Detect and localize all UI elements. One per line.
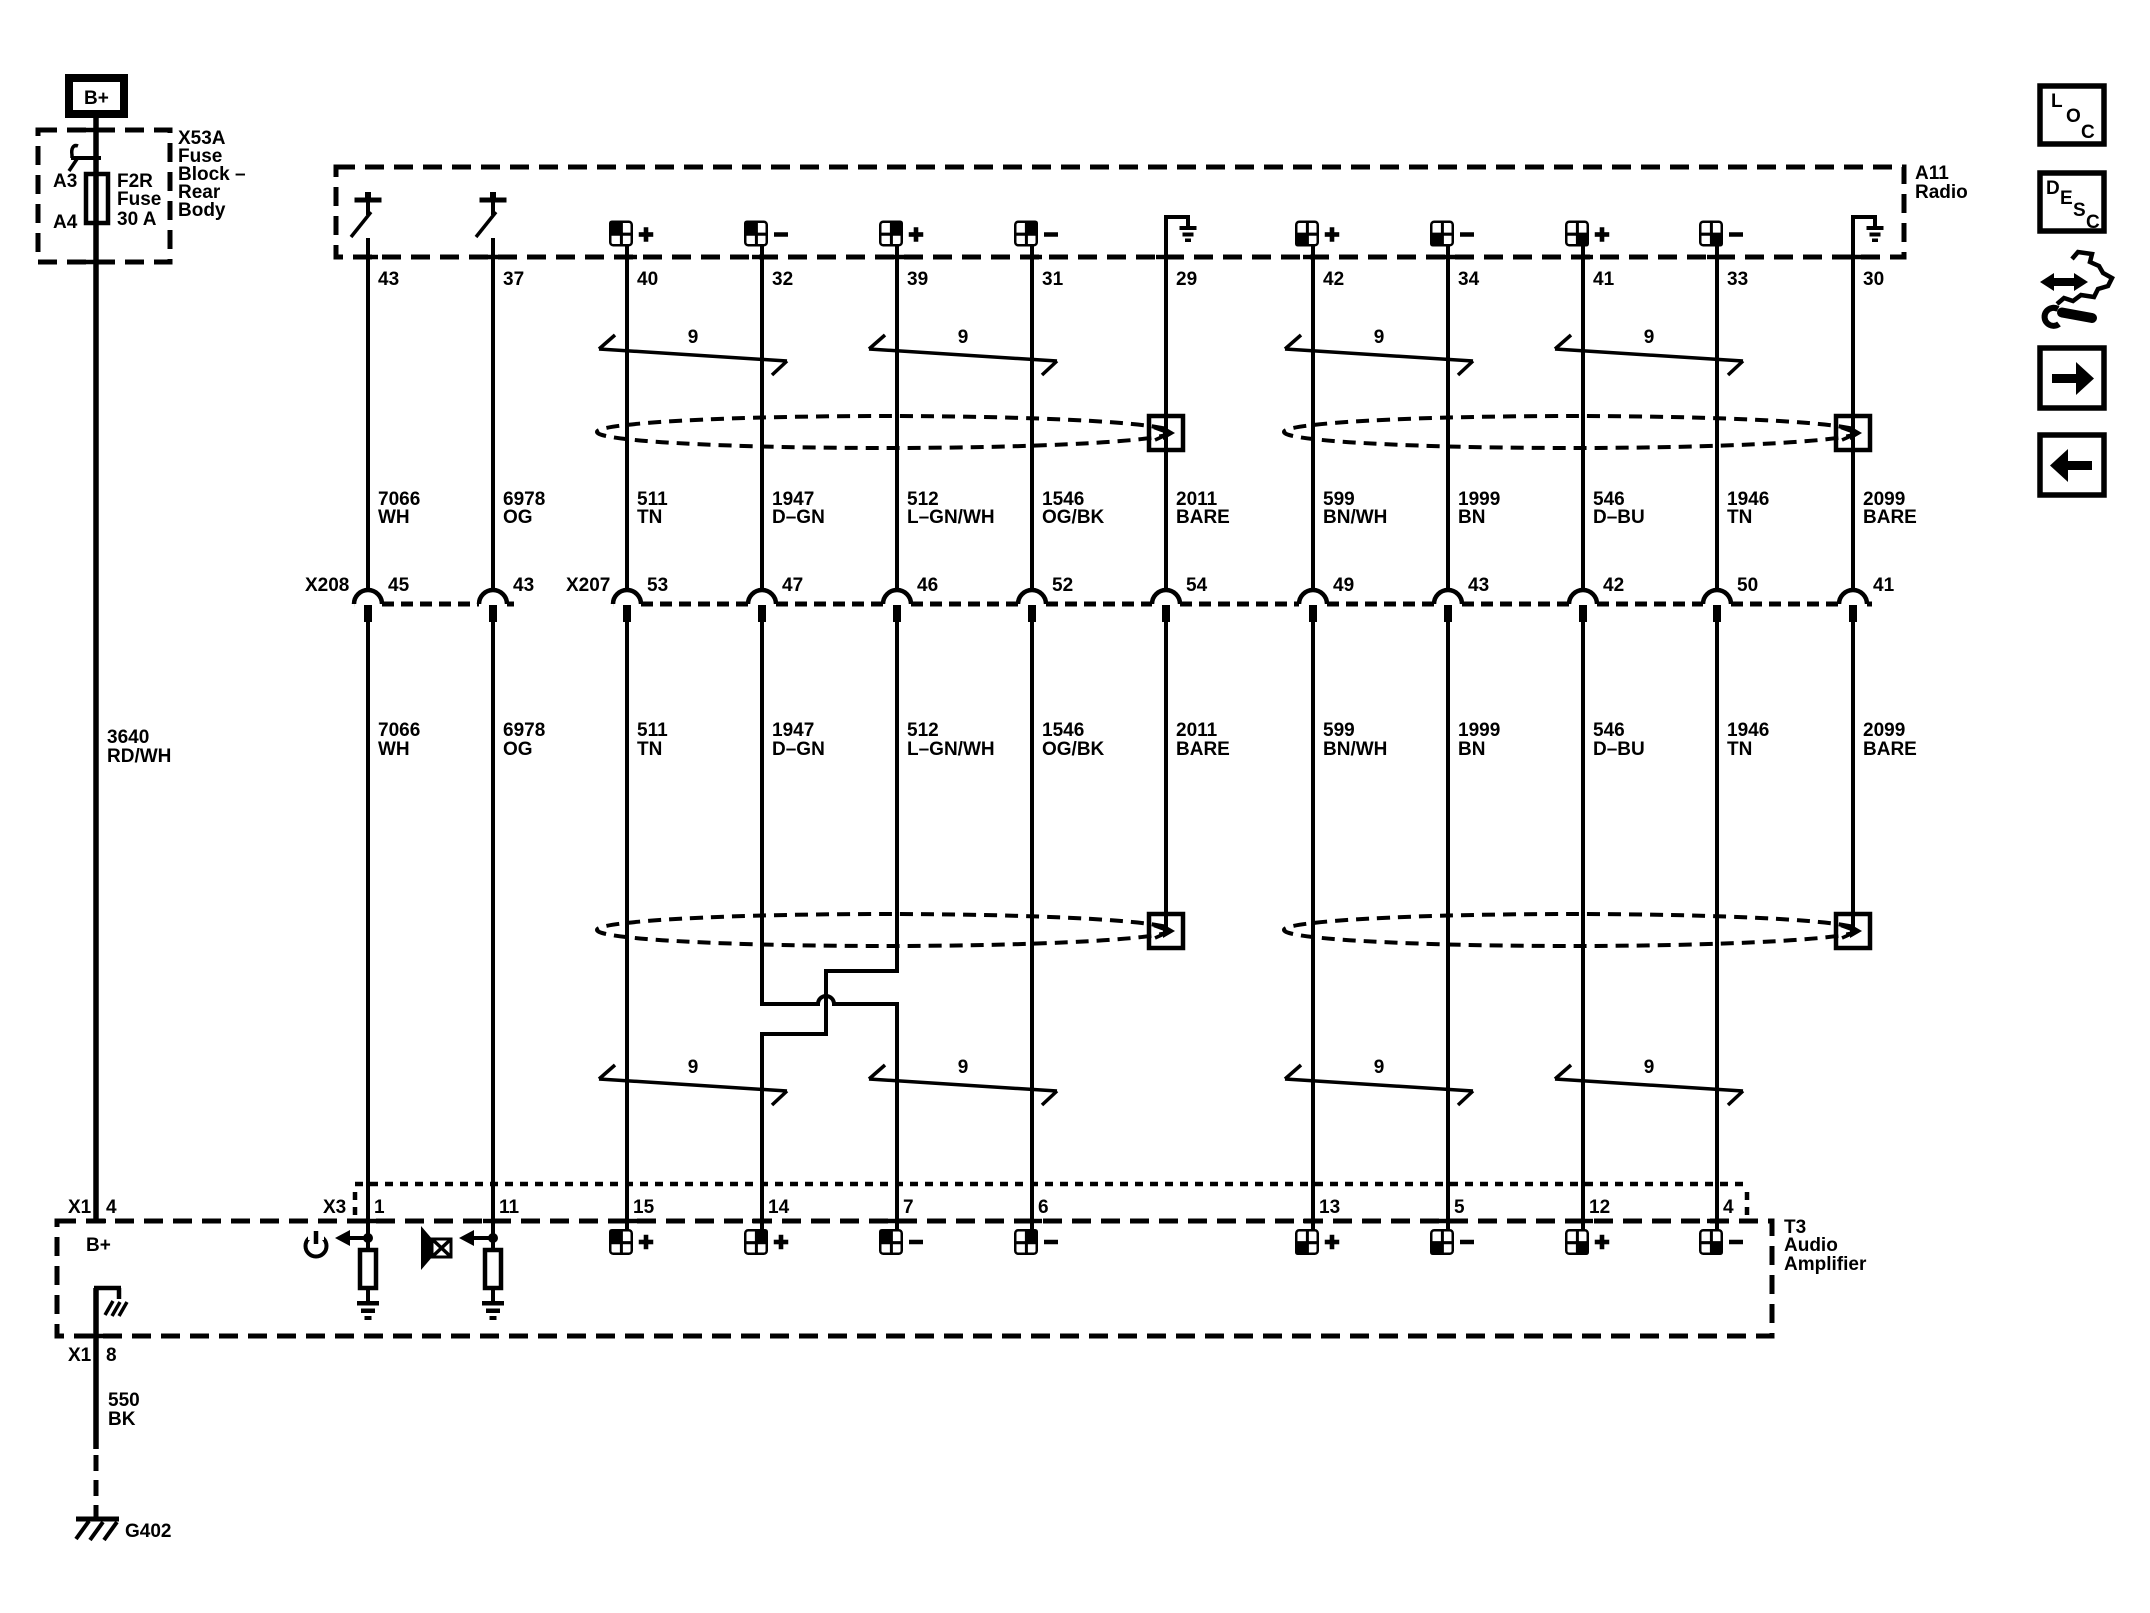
svg-text:X207: X207 (566, 575, 610, 596)
svg-text:Amplifier: Amplifier (1784, 1254, 1867, 1275)
svg-text:9: 9 (1644, 327, 1655, 348)
svg-text:6: 6 (1038, 1197, 1049, 1218)
svg-text:TN: TN (1727, 507, 1752, 528)
svg-text:X1: X1 (68, 1345, 92, 1366)
svg-text:46: 46 (917, 575, 938, 596)
svg-text:1546: 1546 (1042, 720, 1084, 741)
svg-text:BK: BK (108, 1409, 136, 1430)
svg-text:A4: A4 (53, 212, 78, 233)
svg-text:BN: BN (1458, 507, 1485, 528)
svg-text:511: 511 (637, 720, 668, 741)
svg-text:4: 4 (1723, 1197, 1734, 1218)
svg-text:30: 30 (1863, 269, 1884, 290)
svg-text:WH: WH (378, 739, 410, 760)
svg-text:1947: 1947 (772, 720, 814, 741)
svg-text:12: 12 (1589, 1197, 1610, 1218)
svg-text:4: 4 (106, 1197, 117, 1218)
svg-text:X1: X1 (68, 1197, 92, 1218)
svg-text:OG: OG (503, 507, 533, 528)
svg-text:TN: TN (637, 507, 662, 528)
svg-text:A3: A3 (53, 171, 77, 192)
svg-text:RD/WH: RD/WH (107, 746, 171, 767)
svg-text:B+: B+ (86, 1235, 111, 1256)
svg-text:D–GN: D–GN (772, 507, 825, 528)
svg-text:11: 11 (499, 1197, 520, 1218)
svg-text:49: 49 (1333, 575, 1354, 596)
svg-text:9: 9 (958, 327, 969, 348)
svg-text:33: 33 (1727, 269, 1748, 290)
svg-text:9: 9 (958, 1057, 969, 1078)
svg-text:C: C (2081, 122, 2095, 143)
svg-text:O: O (2066, 106, 2081, 127)
svg-text:3640: 3640 (107, 727, 149, 748)
svg-text:512: 512 (907, 720, 939, 741)
svg-text:41: 41 (1593, 269, 1615, 290)
svg-text:7066: 7066 (378, 720, 420, 741)
svg-text:BN/WH: BN/WH (1323, 507, 1387, 528)
svg-text:D–BU: D–BU (1593, 739, 1645, 760)
svg-text:OG/BK: OG/BK (1042, 507, 1105, 528)
svg-text:Body: Body (178, 200, 226, 221)
svg-text:B+: B+ (84, 88, 109, 109)
svg-text:C: C (2086, 212, 2100, 233)
svg-text:BARE: BARE (1863, 507, 1917, 528)
svg-text:2099: 2099 (1863, 720, 1905, 741)
svg-text:D–BU: D–BU (1593, 507, 1645, 528)
svg-text:30 A: 30 A (117, 209, 157, 230)
svg-text:WH: WH (378, 507, 410, 528)
svg-text:BN/WH: BN/WH (1323, 739, 1387, 760)
svg-text:15: 15 (633, 1197, 655, 1218)
svg-text:5: 5 (1454, 1197, 1465, 1218)
svg-text:29: 29 (1176, 269, 1197, 290)
svg-text:34: 34 (1458, 269, 1480, 290)
svg-text:7: 7 (903, 1197, 914, 1218)
svg-text:Audio: Audio (1784, 1235, 1838, 1256)
svg-text:31: 31 (1042, 269, 1064, 290)
svg-text:L–GN/WH: L–GN/WH (907, 507, 995, 528)
svg-text:39: 39 (907, 269, 928, 290)
svg-text:6978: 6978 (503, 720, 545, 741)
svg-text:1946: 1946 (1727, 720, 1769, 741)
svg-text:52: 52 (1052, 575, 1073, 596)
svg-text:BARE: BARE (1176, 507, 1230, 528)
svg-text:S: S (2073, 200, 2086, 221)
svg-text:9: 9 (1374, 1057, 1385, 1078)
svg-text:1999: 1999 (1458, 720, 1500, 741)
svg-text:41: 41 (1873, 575, 1895, 596)
svg-text:9: 9 (1644, 1057, 1655, 1078)
svg-text:BARE: BARE (1863, 739, 1917, 760)
svg-text:Fuse: Fuse (117, 189, 161, 210)
svg-text:43: 43 (513, 575, 534, 596)
svg-text:42: 42 (1603, 575, 1624, 596)
svg-text:1: 1 (374, 1197, 385, 1218)
svg-text:40: 40 (637, 269, 658, 290)
svg-text:37: 37 (503, 269, 524, 290)
svg-text:54: 54 (1186, 575, 1208, 596)
svg-text:53: 53 (647, 575, 668, 596)
svg-text:50: 50 (1737, 575, 1758, 596)
svg-text:X208: X208 (305, 575, 349, 596)
svg-text:BN: BN (1458, 739, 1485, 760)
svg-text:9: 9 (1374, 327, 1385, 348)
svg-text:BARE: BARE (1176, 739, 1230, 760)
svg-text:Radio: Radio (1915, 182, 1968, 203)
svg-text:2011: 2011 (1176, 720, 1218, 741)
svg-text:A11: A11 (1915, 163, 1949, 184)
svg-text:45: 45 (388, 575, 410, 596)
svg-text:D–GN: D–GN (772, 739, 825, 760)
svg-text:E: E (2060, 188, 2073, 209)
svg-text:9: 9 (688, 1057, 699, 1078)
svg-text:546: 546 (1593, 720, 1625, 741)
svg-text:42: 42 (1323, 269, 1344, 290)
svg-text:599: 599 (1323, 720, 1355, 741)
svg-text:L: L (2051, 91, 2063, 112)
svg-text:TN: TN (1727, 739, 1752, 760)
svg-text:X3: X3 (323, 1197, 346, 1218)
svg-text:OG: OG (503, 739, 533, 760)
svg-text:43: 43 (1468, 575, 1489, 596)
svg-text:550: 550 (108, 1390, 140, 1411)
svg-text:43: 43 (378, 269, 399, 290)
svg-text:L–GN/WH: L–GN/WH (907, 739, 995, 760)
svg-text:47: 47 (782, 575, 803, 596)
svg-text:D: D (2046, 178, 2060, 199)
svg-text:TN: TN (637, 739, 662, 760)
svg-text:OG/BK: OG/BK (1042, 739, 1105, 760)
svg-text:32: 32 (772, 269, 793, 290)
svg-text:G402: G402 (125, 1521, 171, 1542)
svg-text:14: 14 (768, 1197, 790, 1218)
svg-text:13: 13 (1319, 1197, 1340, 1218)
svg-text:8: 8 (106, 1345, 117, 1366)
svg-text:9: 9 (688, 327, 699, 348)
